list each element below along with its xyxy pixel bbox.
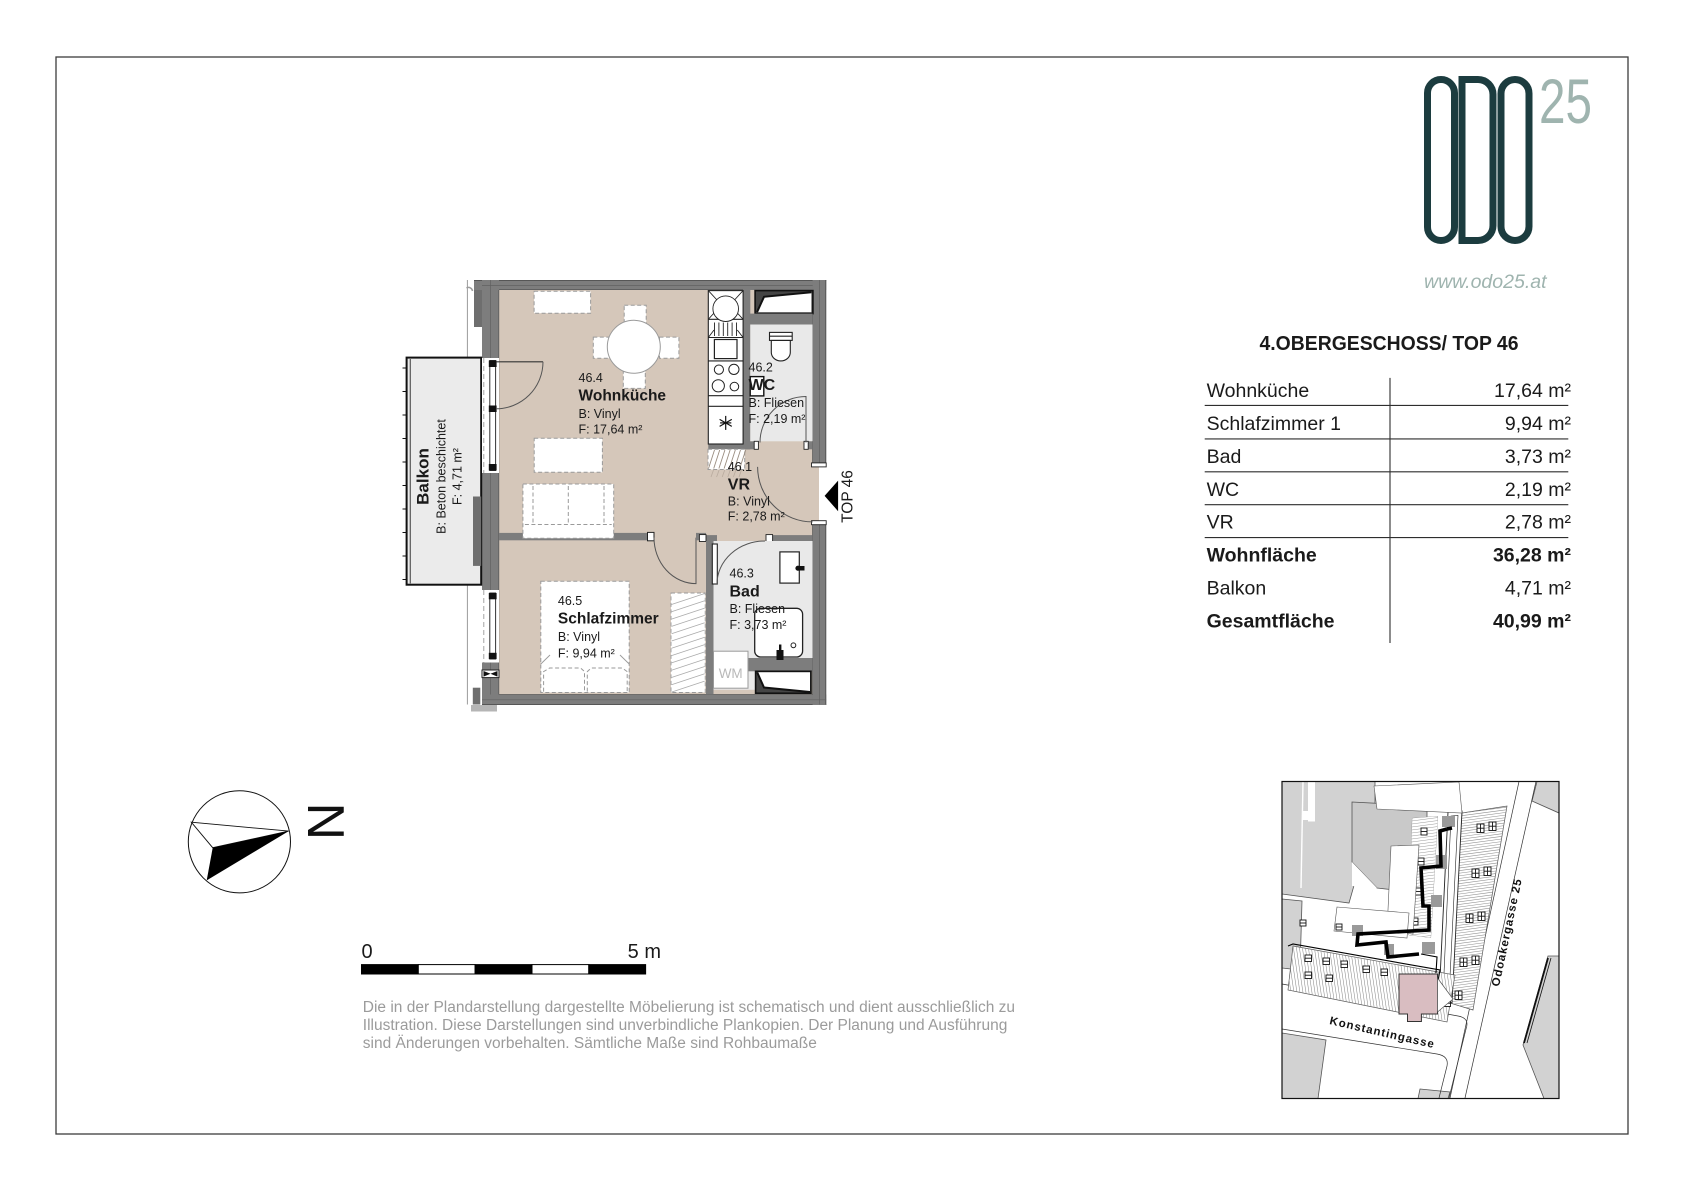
svg-text:40,99 m²: 40,99 m²	[1493, 610, 1572, 632]
svg-text:Die in der Plandarstellung dar: Die in der Plandarstellung dargestellte …	[363, 999, 1015, 1016]
svg-text:B: Fliesen: B: Fliesen	[749, 396, 805, 410]
svg-text:N: N	[296, 803, 354, 841]
svg-text:Balkon: Balkon	[414, 448, 433, 505]
svg-text:TOP 46: TOP 46	[840, 470, 857, 523]
svg-text:9,94 m²: 9,94 m²	[1505, 413, 1572, 435]
svg-text:46.1: 46.1	[728, 460, 752, 474]
svg-text:36,28 m²: 36,28 m²	[1493, 545, 1572, 567]
svg-text:F: 2,19 m²: F: 2,19 m²	[749, 412, 806, 426]
svg-text:VR: VR	[1207, 512, 1234, 534]
svg-text:Gesamtfläche: Gesamtfläche	[1207, 610, 1335, 632]
svg-text:B: Vinyl: B: Vinyl	[728, 495, 770, 509]
svg-text:B: Fliesen: B: Fliesen	[730, 602, 786, 616]
svg-text:F: 3,73 m²: F: 3,73 m²	[730, 618, 787, 632]
svg-text:46.2: 46.2	[749, 361, 773, 375]
svg-text:WC: WC	[1207, 479, 1240, 501]
svg-text:Odoakergasse 25: Odoakergasse 25	[1490, 877, 1525, 987]
svg-text:Schlafzimmer 1: Schlafzimmer 1	[1207, 413, 1341, 435]
svg-text:3,73 m²: 3,73 m²	[1505, 446, 1572, 468]
svg-text:46.4: 46.4	[579, 371, 603, 385]
svg-text:sind Änderungen vorbehalten. S: sind Änderungen vorbehalten. Sämtliche M…	[363, 1035, 817, 1052]
svg-text:F: 4,71 m²: F: 4,71 m²	[451, 448, 465, 505]
svg-text:4.OBERGESCHOSS/ TOP 46: 4.OBERGESCHOSS/ TOP 46	[1260, 332, 1519, 355]
svg-text:Balkon: Balkon	[1207, 578, 1267, 600]
svg-text:17,64 m²: 17,64 m²	[1494, 380, 1571, 402]
svg-text:F: 9,94 m²: F: 9,94 m²	[558, 647, 615, 661]
svg-text:Wohnfläche: Wohnfläche	[1207, 545, 1317, 567]
svg-text:Schlafzimmer: Schlafzimmer	[558, 611, 659, 628]
svg-text:WC: WC	[749, 377, 776, 394]
svg-text:www.odo25.at: www.odo25.at	[1424, 271, 1548, 293]
svg-text:5 m: 5 m	[628, 941, 661, 963]
svg-text:2,19 m²: 2,19 m²	[1505, 479, 1572, 501]
svg-text:46.5: 46.5	[558, 594, 582, 608]
svg-text:WM: WM	[719, 666, 743, 681]
svg-text:F: 17,64 m²: F: 17,64 m²	[579, 423, 643, 437]
svg-text:Wohnküche: Wohnküche	[1207, 380, 1310, 402]
svg-text:Bad: Bad	[730, 584, 760, 601]
svg-text:B: Beton beschichtet: B: Beton beschichtet	[435, 419, 449, 534]
svg-text:25: 25	[1539, 67, 1592, 137]
svg-text:B: Vinyl: B: Vinyl	[579, 407, 621, 421]
svg-text:4,71 m²: 4,71 m²	[1505, 578, 1572, 600]
svg-text:Illustration. Diese Darstellun: Illustration. Diese Darstellungen sind u…	[363, 1017, 1008, 1034]
svg-text:2,78 m²: 2,78 m²	[1505, 512, 1572, 534]
svg-text:B: Vinyl: B: Vinyl	[558, 630, 600, 644]
svg-text:Wohnküche: Wohnküche	[579, 388, 667, 405]
svg-text:F: 2,78 m²: F: 2,78 m²	[728, 510, 785, 524]
svg-text:VR: VR	[728, 477, 751, 494]
svg-text:0: 0	[362, 941, 373, 963]
svg-text:Bad: Bad	[1207, 446, 1242, 468]
svg-text:46.3: 46.3	[730, 567, 754, 581]
